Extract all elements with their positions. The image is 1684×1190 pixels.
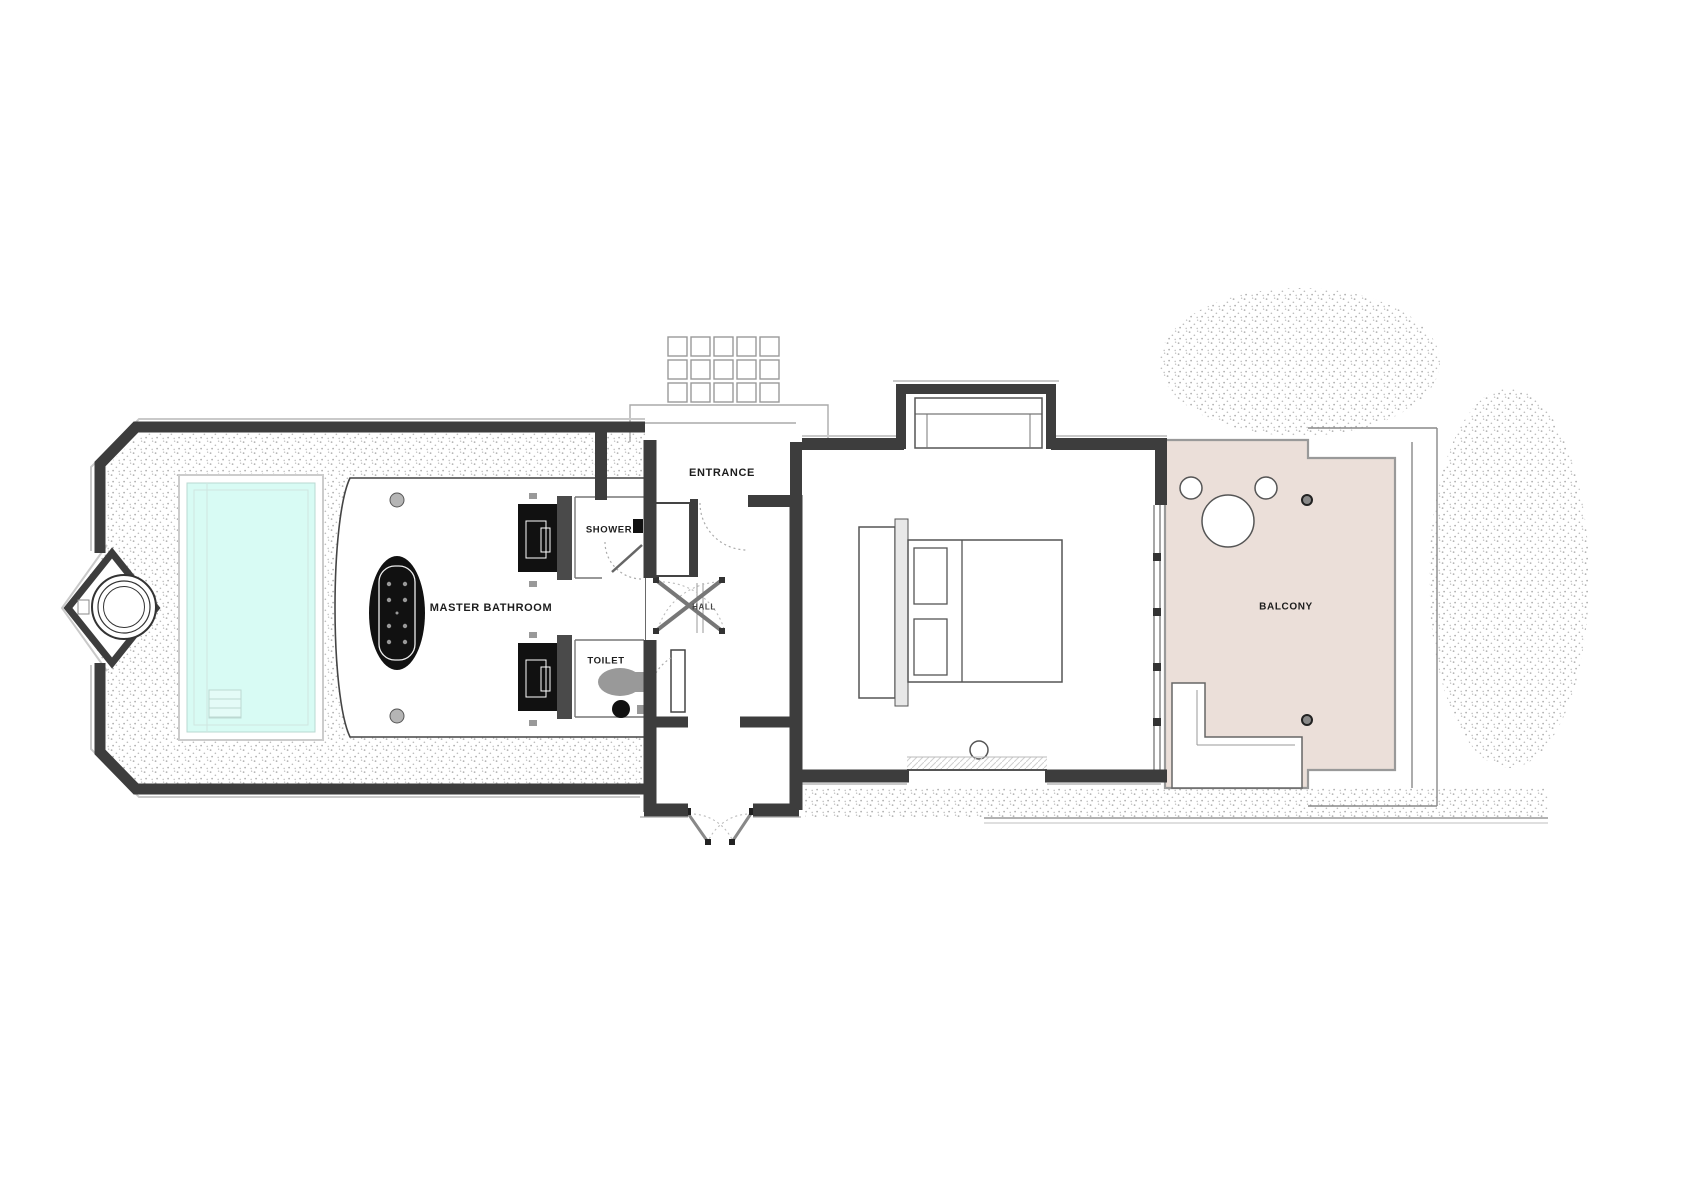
balcony-chair	[1180, 477, 1202, 499]
room-label-shower: SHOWER	[586, 525, 632, 536]
room-label-master-bathroom: MASTER BATHROOM	[430, 602, 552, 614]
oval-bathtub	[369, 556, 425, 670]
stepping-stones	[668, 337, 779, 402]
window-niche	[907, 757, 1047, 770]
pillow	[914, 548, 947, 604]
vestibule-double-doors	[684, 808, 756, 845]
deck-fixing	[1302, 715, 1312, 725]
pillow	[914, 619, 947, 675]
plunge-pool	[179, 475, 323, 740]
entrance-door	[653, 503, 747, 576]
room-label-entrance: ENTRANCE	[689, 467, 755, 479]
wardrobe	[915, 398, 1042, 448]
floor-lamp	[970, 741, 988, 759]
floor-plan: ENTRANCE MASTER BATHROOM SHOWER TOILET H…	[0, 0, 1684, 1190]
room-label-hall: HALL	[692, 603, 716, 612]
balcony-round-table	[1202, 495, 1254, 547]
balcony-chair	[1255, 477, 1277, 499]
pathway-edge	[984, 818, 1548, 823]
sliding-glass-doors	[1153, 505, 1161, 772]
deck-fixing	[1302, 495, 1312, 505]
room-label-balcony: BALCONY	[1259, 602, 1313, 613]
room-label-toilet: TOILET	[587, 656, 624, 667]
floor-plan-drawing	[0, 0, 1684, 1190]
double-bed	[859, 519, 1062, 706]
